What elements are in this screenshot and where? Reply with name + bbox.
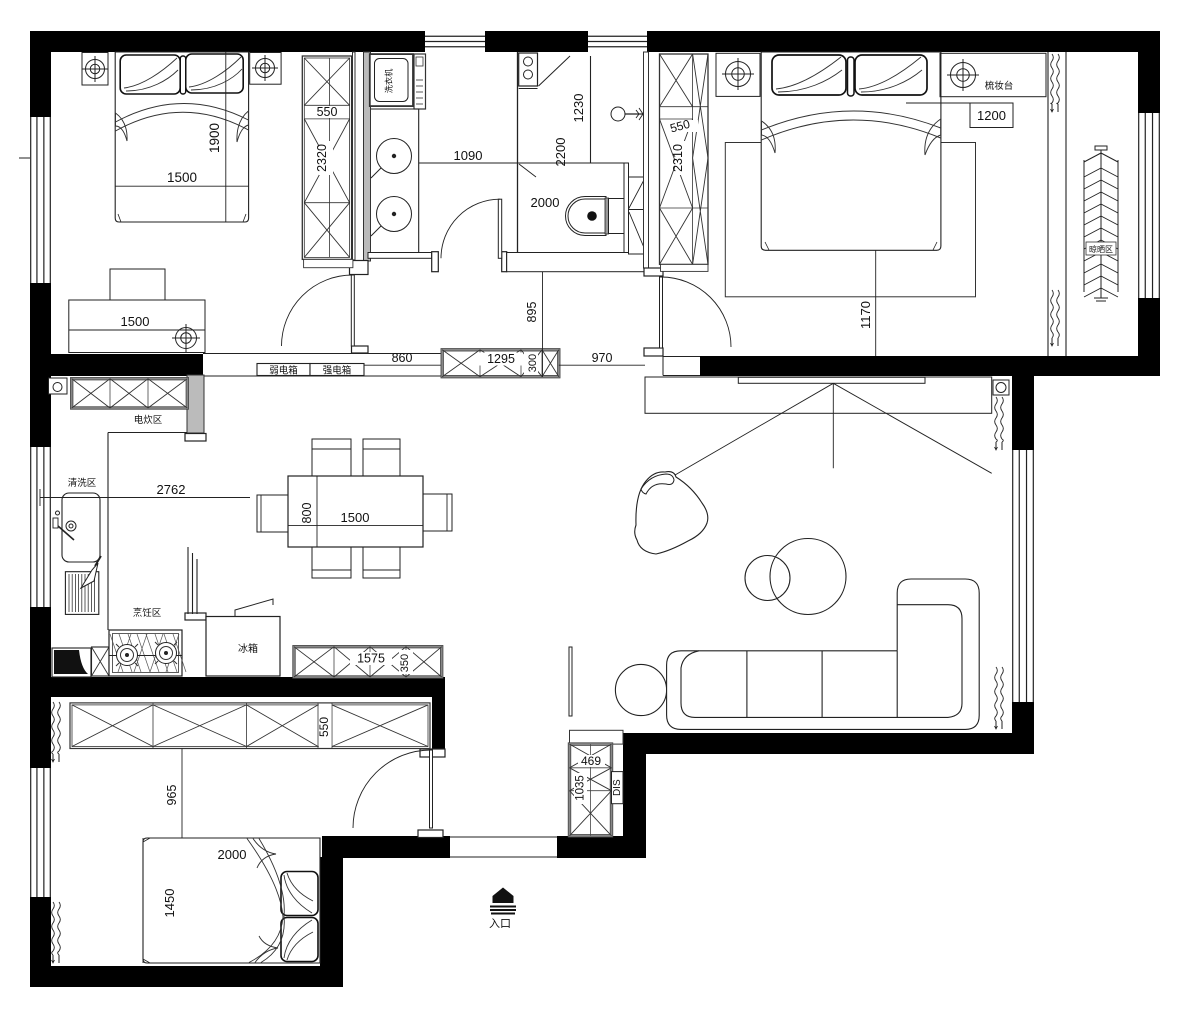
svg-text:DIS: DIS <box>612 779 623 796</box>
svg-text:烹饪区: 烹饪区 <box>133 607 162 619</box>
svg-text:1200: 1200 <box>977 108 1006 123</box>
svg-text:2320: 2320 <box>315 144 329 172</box>
svg-text:强电箱: 强电箱 <box>323 365 352 377</box>
svg-text:2000: 2000 <box>218 847 247 862</box>
svg-text:2000: 2000 <box>531 195 560 210</box>
svg-text:梳妆台: 梳妆台 <box>985 80 1014 92</box>
svg-text:1090: 1090 <box>454 148 483 163</box>
svg-text:860: 860 <box>392 351 413 365</box>
svg-text:1170: 1170 <box>858 301 873 329</box>
svg-text:弱电箱: 弱电箱 <box>269 365 298 377</box>
svg-text:1900: 1900 <box>207 123 222 153</box>
svg-text:洗衣机: 洗衣机 <box>384 68 394 93</box>
svg-text:清洗区: 清洗区 <box>68 477 97 489</box>
svg-text:550: 550 <box>317 105 338 119</box>
svg-text:550: 550 <box>317 717 331 737</box>
svg-text:入口: 入口 <box>489 918 511 930</box>
svg-text:2200: 2200 <box>553 138 568 167</box>
svg-text:970: 970 <box>592 351 613 365</box>
svg-text:晾晒区: 晾晒区 <box>1089 244 1113 254</box>
svg-text:1450: 1450 <box>162 889 177 918</box>
svg-text:1500: 1500 <box>341 510 370 525</box>
svg-text:895: 895 <box>525 302 539 323</box>
svg-text:965: 965 <box>165 785 179 806</box>
svg-text:1500: 1500 <box>167 170 197 185</box>
svg-text:1500: 1500 <box>121 314 150 329</box>
svg-text:1230: 1230 <box>571 94 586 123</box>
svg-text:1295: 1295 <box>487 352 515 366</box>
svg-text:2310: 2310 <box>671 144 685 172</box>
svg-text:800: 800 <box>300 503 314 524</box>
svg-text:469: 469 <box>581 754 601 768</box>
svg-text:电炊区: 电炊区 <box>134 414 163 426</box>
svg-text:1575: 1575 <box>357 652 385 666</box>
svg-text:2762: 2762 <box>157 482 186 497</box>
svg-text:1035: 1035 <box>575 775 587 801</box>
svg-text:350: 350 <box>399 654 411 672</box>
svg-text:冰箱: 冰箱 <box>238 642 258 655</box>
svg-text:300: 300 <box>527 354 539 372</box>
